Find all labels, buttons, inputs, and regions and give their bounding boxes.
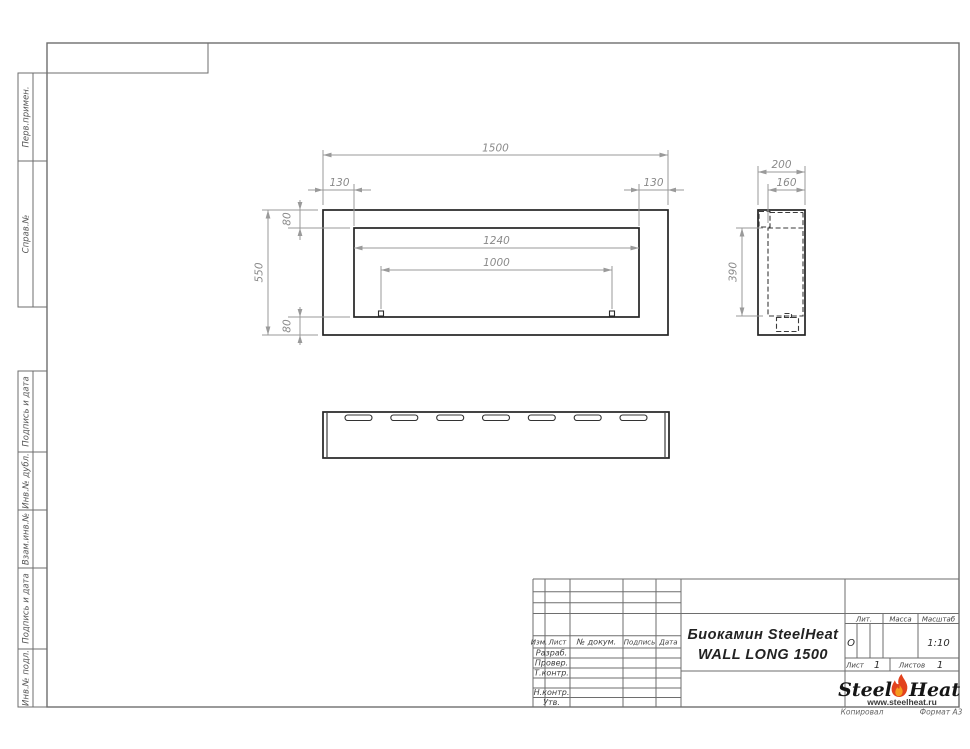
title-block: Изм. Лист № докум. Подпись Дата Разраб. … — [531, 579, 961, 707]
drawing-sheet: Перв.примен. Справ.№ Подпись и дата Инв.… — [0, 0, 970, 749]
lit-label: Лит. — [855, 616, 872, 624]
side-top-hidden-lines — [770, 213, 803, 229]
designation-box — [47, 43, 208, 73]
sheet-label: Лист — [845, 662, 865, 670]
col-date: Дата — [658, 639, 677, 647]
mass-label: Масса — [889, 616, 911, 624]
dim-burner-width: 1000 — [483, 257, 510, 269]
row-checked: Провер. — [535, 659, 568, 668]
col-sign: Подпись — [624, 639, 656, 647]
row-approved: Утв. — [543, 698, 560, 707]
dimension-labels: 1500 130 130 80 550 1240 1000 80 200 160… — [254, 143, 797, 333]
burner-tab-right — [610, 311, 615, 316]
logo-site-url: www.steelheat.ru — [866, 697, 937, 707]
row-ncontrol: Н.контр. — [534, 688, 570, 697]
scale-label: Масштаб — [922, 616, 956, 624]
scale-value: 1:10 — [927, 638, 949, 649]
flame-icon — [892, 674, 908, 697]
sheet-footer: Копировал Формат А3 — [841, 708, 963, 717]
copied-label: Копировал — [841, 708, 884, 717]
side-inner-hidden — [768, 228, 803, 316]
dim-side-depth: 200 — [771, 159, 791, 171]
lit-value: О — [847, 638, 855, 649]
margin-stamps: Перв.примен. Справ.№ Подпись и дата Инв.… — [22, 86, 32, 706]
side-burner-hidden — [777, 318, 799, 332]
dim-bottom-offset: 80 — [282, 319, 294, 333]
dim-opening-width: 1240 — [483, 235, 510, 247]
col-izm: Изм. — [531, 639, 547, 647]
product-title-line2: WALL LONG 1500 — [698, 647, 828, 663]
stamp-sprav-no: Справ.№ — [22, 215, 32, 254]
sheets-value: 1 — [937, 660, 943, 671]
col-list: Лист — [548, 639, 568, 647]
format-label: Формат А3 — [920, 708, 963, 717]
sheet-value: 1 — [874, 660, 880, 671]
stamp-podpis-data-1: Подпись и дата — [22, 376, 32, 446]
col-doc: № докум. — [576, 638, 616, 647]
dim-side-inner-depth: 160 — [776, 177, 796, 189]
stamp-inv-dubl: Инв.№ дубл. — [22, 453, 32, 508]
dim-top-offset: 80 — [282, 212, 294, 226]
row-tcontrol: Т.контр. — [534, 669, 569, 678]
burner-tab-left — [379, 311, 384, 316]
dim-front-width: 1500 — [482, 143, 509, 155]
stamp-perv-primen: Перв.примен. — [22, 86, 32, 147]
steelheat-logo: Steel Heat www.steelheat.ru — [838, 674, 960, 707]
dim-edge-left: 130 — [329, 177, 349, 189]
row-developed: Разраб. — [536, 649, 567, 658]
vent-slots — [345, 415, 647, 421]
stamp-inv-podl: Инв.№ подл. — [22, 650, 32, 706]
stamp-vzam-inv: Взам.инв.№ — [22, 513, 32, 565]
dim-side-inner-height: 390 — [728, 262, 740, 282]
side-view — [758, 210, 805, 335]
dim-front-height: 550 — [254, 262, 266, 282]
sheets-label: Листов — [898, 662, 925, 670]
stamp-podpis-data-2: Подпись и дата — [22, 573, 32, 643]
product-title-line1: Биокамин SteelHeat — [687, 627, 839, 643]
bottom-view — [323, 412, 669, 458]
dim-edge-right: 130 — [643, 177, 663, 189]
front-view — [323, 210, 668, 335]
